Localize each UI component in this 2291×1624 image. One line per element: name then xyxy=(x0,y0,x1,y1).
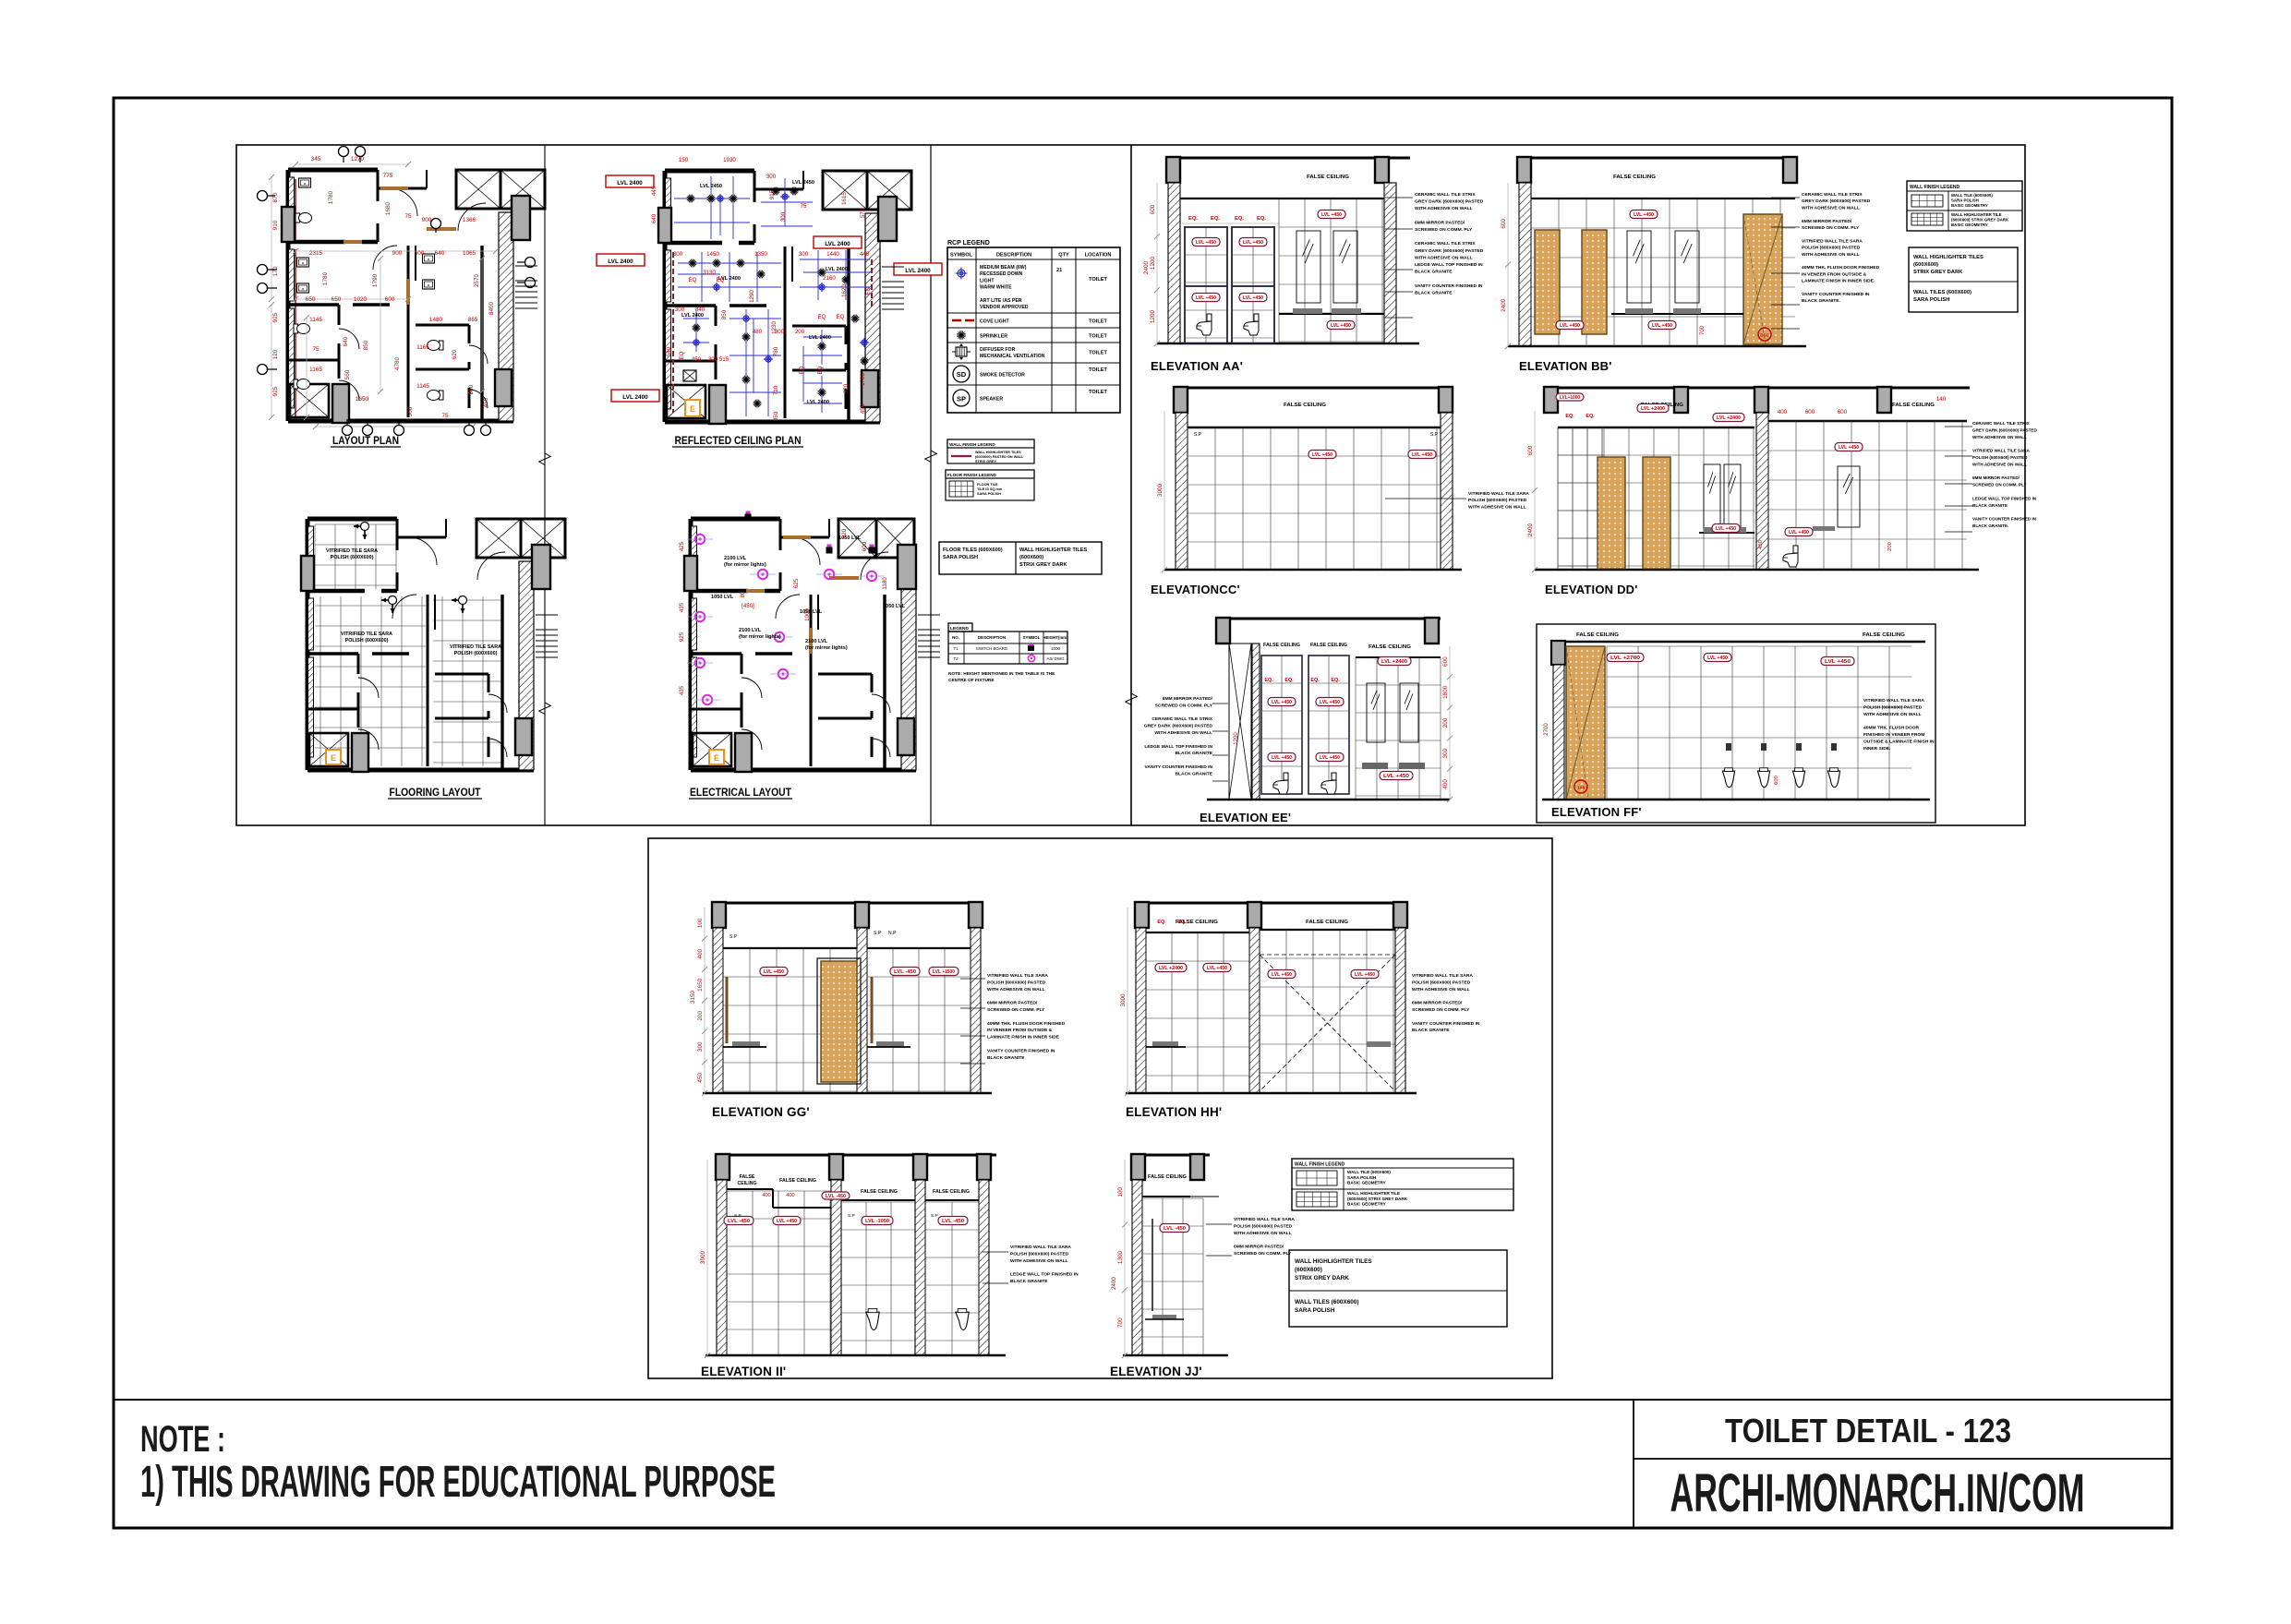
svg-text:LVL +450: LVL +450 xyxy=(1272,700,1292,705)
svg-text:FALSE CEILING: FALSE CEILING xyxy=(1307,174,1349,180)
svg-text:6MM MIRROR PASTED/: 6MM MIRROR PASTED/ xyxy=(987,1001,1038,1006)
svg-text:6MM MIRROR PASTED/: 6MM MIRROR PASTED/ xyxy=(1802,219,1852,224)
svg-text:1270: 1270 xyxy=(351,156,365,162)
svg-text:EQ: EQ xyxy=(837,314,845,320)
svg-text:2100 LVL: 2100 LVL xyxy=(724,556,747,561)
svg-text:BASIC GEOMETRY: BASIC GEOMETRY xyxy=(1951,203,1988,208)
svg-text:POLISH (600X600) PASTED: POLISH (600X600) PASTED xyxy=(1234,1223,1293,1229)
svg-text:WALL FINISH LEGEND: WALL FINISH LEGEND xyxy=(1910,185,1959,190)
svg-text:LVL 2400: LVL 2400 xyxy=(622,394,648,401)
svg-text:1180: 1180 xyxy=(882,577,888,590)
svg-text:VITRIFIED TILE SARA: VITRIFIED TILE SARA xyxy=(450,644,501,650)
svg-text:WITH ADHESIVE ON WALL: WITH ADHESIVE ON WALL xyxy=(1234,1231,1292,1236)
svg-text:800: 800 xyxy=(673,251,683,258)
svg-text:560: 560 xyxy=(407,406,414,416)
svg-text:1145: 1145 xyxy=(416,383,429,390)
svg-text:WITH ADHESIVE ON WALL: WITH ADHESIVE ON WALL xyxy=(1154,730,1212,736)
svg-text:WALL HIGHLIGHTER TILES: WALL HIGHLIGHTER TILES xyxy=(1913,255,1984,260)
svg-text:(600X600) STRIX GREY DARK: (600X600) STRIX GREY DARK xyxy=(1951,218,2009,223)
svg-text:775: 775 xyxy=(383,173,393,179)
svg-text:LVL 2400: LVL 2400 xyxy=(905,268,931,274)
svg-text:WITH ADHESIVE ON WALL: WITH ADHESIVE ON WALL xyxy=(1972,462,2027,466)
svg-text:EQ: EQ xyxy=(818,314,826,320)
svg-text:1000: 1000 xyxy=(1051,646,1060,651)
svg-text:BLACK GRANITE: BLACK GRANITE xyxy=(1415,270,1453,275)
svg-text:SARA POLISH: SARA POLISH xyxy=(1295,1307,1335,1314)
svg-text:GREY DARK (600X600) PASTED: GREY DARK (600X600) PASTED xyxy=(1415,199,1484,205)
svg-text:780: 780 xyxy=(773,346,779,356)
svg-text:2315: 2315 xyxy=(309,250,323,257)
svg-text:CERAMIC WALL TILE STRIX: CERAMIC WALL TILE STRIX xyxy=(1415,192,1476,198)
svg-text:LVL +450: LVL +450 xyxy=(1196,295,1216,301)
svg-text:LVL +2400: LVL +2400 xyxy=(1159,966,1183,971)
svg-text:120: 120 xyxy=(272,349,279,359)
svg-text:DESCRIPTION: DESCRIPTION xyxy=(978,635,1006,640)
svg-text:440: 440 xyxy=(860,251,870,258)
svg-text:21: 21 xyxy=(1056,268,1062,273)
svg-text:EQ.: EQ. xyxy=(1310,678,1320,683)
svg-text:300: 300 xyxy=(697,1041,704,1052)
svg-text:VITRIFIED WALL TILE SARA: VITRIFIED WALL TILE SARA xyxy=(1234,1217,1295,1222)
svg-text:ELEVATION EE': ELEVATION EE' xyxy=(1200,811,1291,824)
svg-text:6MM MIRROR PASTED/: 6MM MIRROR PASTED/ xyxy=(1163,696,1213,702)
svg-text:LVL +450: LVL +450 xyxy=(1716,526,1736,532)
svg-text:400: 400 xyxy=(697,948,704,958)
svg-text:1050 LVL: 1050 LVL xyxy=(800,609,823,615)
svg-text:SARA POLISH: SARA POLISH xyxy=(943,555,978,560)
svg-text:CERAMIC WALL TILE STRIX: CERAMIC WALL TILE STRIX xyxy=(1972,421,2031,426)
svg-text:SCREWED ON COMM. PLY: SCREWED ON COMM. PLY xyxy=(1415,227,1473,233)
svg-text:VITRIFIED WALL TILE SARA: VITRIFIED WALL TILE SARA xyxy=(1468,491,1529,497)
svg-text:FALSE CEILING: FALSE CEILING xyxy=(933,1189,970,1195)
svg-text:MECHANICAL VENTILATION: MECHANICAL VENTILATION xyxy=(980,354,1045,359)
svg-text:DESCRIPTION: DESCRIPTION xyxy=(996,253,1031,259)
svg-text:1X8: 1X8 xyxy=(1577,786,1585,790)
svg-text:820: 820 xyxy=(843,383,850,393)
svg-text:AS/ DWG: AS/ DWG xyxy=(1046,656,1065,661)
svg-text:515: 515 xyxy=(719,356,730,363)
svg-text:2400: 2400 xyxy=(1111,1277,1117,1290)
svg-text:LVL 2450: LVL 2450 xyxy=(700,184,722,189)
svg-text:(600X600) STRIX GREY DARK: (600X600) STRIX GREY DARK xyxy=(1347,1197,1408,1201)
svg-text:TOILET: TOILET xyxy=(1089,334,1107,340)
svg-text:SPEAKER: SPEAKER xyxy=(980,397,1003,403)
svg-text:TOILET: TOILET xyxy=(1089,367,1107,373)
svg-text:EQ.: EQ. xyxy=(1211,216,1220,222)
svg-text:573: 573 xyxy=(860,208,866,218)
svg-text:480: 480 xyxy=(753,329,763,335)
svg-text:VITRIFIED TILE SARA: VITRIFIED TILE SARA xyxy=(326,548,378,554)
svg-text:EQ.: EQ. xyxy=(1235,216,1244,222)
svg-text:75: 75 xyxy=(404,213,412,220)
svg-text:600: 600 xyxy=(1774,776,1779,785)
svg-text:FLOOR TILES (600X600): FLOOR TILES (600X600) xyxy=(943,547,1003,553)
svg-text:WALL TILES (600X600): WALL TILES (600X600) xyxy=(1295,1299,1359,1305)
svg-text:EQ.: EQ. xyxy=(1565,414,1574,419)
svg-text:6MM MIRROR PASTED/: 6MM MIRROR PASTED/ xyxy=(1234,1245,1284,1250)
svg-text:GREY DARK (600X600) PASTED: GREY DARK (600X600) PASTED xyxy=(1415,248,1484,254)
svg-text:LIGHT: LIGHT xyxy=(980,278,995,283)
svg-text:ARCHI-MONARCH.IN/COM: ARCHI-MONARCH.IN/COM xyxy=(1670,1463,2085,1523)
svg-text:NOTE: HEIGHT MENTIONED IN THE: NOTE: HEIGHT MENTIONED IN THE TABLE IS T… xyxy=(948,671,1055,677)
svg-text:ELEVATION BB': ELEVATION BB' xyxy=(1519,359,1612,373)
svg-text:LVL +450: LVL +450 xyxy=(764,969,784,975)
svg-text:SARA POLISH: SARA POLISH xyxy=(977,492,1001,496)
svg-text:BLACK GRANITE: BLACK GRANITE xyxy=(1415,290,1453,295)
svg-text:710: 710 xyxy=(773,385,779,395)
svg-text:LVL +450: LVL +450 xyxy=(1207,966,1227,971)
svg-text:LAYOUT PLAN: LAYOUT PLAN xyxy=(332,436,399,447)
svg-text:BASIC GEOMETRY: BASIC GEOMETRY xyxy=(1951,223,1988,227)
svg-text:LVL +450: LVL +450 xyxy=(1789,530,1809,535)
svg-text:600: 600 xyxy=(1805,409,1815,415)
svg-text:CERAMIC WALL TILE STRIX: CERAMIC WALL TILE STRIX xyxy=(1802,192,1863,198)
svg-text:2160: 2160 xyxy=(823,275,836,282)
svg-text:DIFFUSER FOR: DIFFUSER FOR xyxy=(980,347,1016,353)
svg-text:LVL +450: LVL +450 xyxy=(1355,972,1375,978)
svg-text:840: 840 xyxy=(468,384,475,394)
svg-text:75: 75 xyxy=(441,413,449,419)
svg-text:CERAMIC WALL TILE STRIX: CERAMIC WALL TILE STRIX xyxy=(1152,716,1212,722)
svg-text:WALL HIGHLIGHTER TILE: WALL HIGHLIGHTER TILE xyxy=(1347,1191,1400,1196)
svg-text:EQ: EQ xyxy=(679,351,685,359)
svg-text:LVL +450: LVL +450 xyxy=(1707,656,1728,661)
svg-text:2100 LVL: 2100 LVL xyxy=(805,639,828,644)
svg-text:VITRIFIED WALL TILE SARA: VITRIFIED WALL TILE SARA xyxy=(1863,698,1924,704)
svg-text:POLISH (600X600): POLISH (600X600) xyxy=(345,638,389,644)
svg-text:LVL +450: LVL +450 xyxy=(1320,700,1340,705)
svg-text:450: 450 xyxy=(692,356,702,363)
svg-text:LEGEND: LEGEND xyxy=(950,626,970,632)
svg-text:1650: 1650 xyxy=(356,396,369,403)
svg-text:S.P: S.P xyxy=(730,934,738,940)
svg-text:BLACK GRANITE: BLACK GRANITE xyxy=(1972,503,2008,508)
svg-text:600: 600 xyxy=(385,296,395,303)
svg-text:ART LITE /AS PER: ART LITE /AS PER xyxy=(980,298,1022,304)
svg-text:POLISH (600X600) PASTED: POLISH (600X600) PASTED xyxy=(1412,980,1471,985)
svg-text:WITH ADHESIVE ON WALL: WITH ADHESIVE ON WALL xyxy=(1415,206,1473,211)
svg-text:LVL +450: LVL +450 xyxy=(1383,774,1409,779)
svg-text:BASIC GEOMETRY: BASIC GEOMETRY xyxy=(1347,1202,1386,1207)
svg-text:700: 700 xyxy=(1117,1317,1124,1328)
svg-text:E: E xyxy=(714,753,719,763)
svg-text:1290: 1290 xyxy=(749,290,755,303)
svg-text:3150: 3150 xyxy=(690,991,696,1004)
svg-text:1366: 1366 xyxy=(463,217,476,223)
svg-text:RCP LEGEND: RCP LEGEND xyxy=(947,240,990,247)
svg-text:MEDIUM BEAM (6W): MEDIUM BEAM (6W) xyxy=(980,265,1027,271)
svg-text:POLISH (600X600) PASTED: POLISH (600X600) PASTED xyxy=(1863,704,1923,710)
svg-text:FLOOR FINISH LEGEND: FLOOR FINISH LEGEND xyxy=(947,473,997,477)
svg-text:910: 910 xyxy=(272,220,279,230)
svg-text:VITRIFIED WALL TILE SARA: VITRIFIED WALL TILE SARA xyxy=(1010,1245,1071,1250)
svg-text:VANITY COUNTER FINISHED IN: VANITY COUNTER FINISHED IN xyxy=(1415,283,1483,289)
svg-text:450: 450 xyxy=(697,1072,704,1082)
svg-text:LEDGE WALL TOP FINISHED IN: LEDGE WALL TOP FINISHED IN xyxy=(1144,744,1212,750)
svg-text:N.P: N.P xyxy=(888,931,897,936)
svg-text:ELEVATIONCC': ELEVATIONCC' xyxy=(1151,583,1240,596)
svg-text:(for mirror lights): (for mirror lights) xyxy=(739,634,781,640)
svg-text:STRIX GREY: STRIX GREY xyxy=(975,460,996,463)
svg-text:1615: 1615 xyxy=(841,192,848,205)
svg-text:POLISH (600X600) PASTED: POLISH (600X600) PASTED xyxy=(1010,1251,1069,1257)
svg-text:FALSE CEILING: FALSE CEILING xyxy=(1863,632,1905,638)
svg-text:POLISH (600X600): POLISH (600X600) xyxy=(454,651,498,656)
svg-text:SCREWED ON COMM. PLY: SCREWED ON COMM. PLY xyxy=(1155,703,1213,708)
svg-text:OUTSIDE & LAMINATE FINISH IN: OUTSIDE & LAMINATE FINISH IN xyxy=(1863,739,1935,744)
svg-text:EQ.: EQ. xyxy=(1177,920,1187,925)
svg-text:450: 450 xyxy=(483,397,489,407)
svg-text:FALSE CEILING: FALSE CEILING xyxy=(1284,403,1326,408)
svg-text:FALSE CEILING: FALSE CEILING xyxy=(1892,403,1935,408)
svg-text:WITH ADHESIVE ON WALL: WITH ADHESIVE ON WALL xyxy=(1863,712,1922,717)
svg-text:870: 870 xyxy=(272,192,279,202)
svg-text:600: 600 xyxy=(1527,445,1534,455)
svg-text:WITH ADHESIVE ON WALL: WITH ADHESIVE ON WALL xyxy=(1415,255,1473,260)
svg-text:S.P: S.P xyxy=(874,931,882,936)
svg-text:625: 625 xyxy=(793,578,800,588)
svg-text:LVL +2700: LVL +2700 xyxy=(1610,656,1640,661)
svg-text:POLISH (600X600) PASTED: POLISH (600X600) PASTED xyxy=(1972,455,2028,460)
svg-text:[450]: [450] xyxy=(742,603,754,609)
svg-text:EQ: EQ xyxy=(865,286,872,295)
svg-text:LAMINATE FINISH IN INNER SIDE.: LAMINATE FINISH IN INNER SIDE. xyxy=(1802,279,1875,284)
svg-text:POLISH (600X600): POLISH (600X600) xyxy=(331,555,374,560)
svg-text:WALL FINISH LEGEND: WALL FINISH LEGEND xyxy=(949,442,995,447)
svg-text:VENDOR APPROVED: VENDOR APPROVED xyxy=(980,305,1029,310)
svg-text:LVL +450: LVL +450 xyxy=(1839,445,1859,451)
svg-text:WARM WHITE: WARM WHITE xyxy=(980,285,1012,291)
svg-text:SARA POLISH: SARA POLISH xyxy=(1347,1175,1377,1180)
svg-text:(600X600) PASTED ON WALL: (600X600) PASTED ON WALL xyxy=(975,455,1024,459)
svg-text:100: 100 xyxy=(1117,1187,1124,1197)
svg-text:LOCATION: LOCATION xyxy=(1085,253,1112,259)
svg-text:(for mirror lights): (for mirror lights) xyxy=(724,562,766,568)
svg-text:75: 75 xyxy=(801,203,807,210)
svg-text:600: 600 xyxy=(862,541,868,551)
svg-text:300: 300 xyxy=(675,307,685,313)
svg-text:SARA POLISH: SARA POLISH xyxy=(1913,297,1949,303)
svg-text:LVL +1500: LVL +1500 xyxy=(933,969,955,975)
svg-text:IN VENEER FROM OUTSIDE &: IN VENEER FROM OUTSIDE & xyxy=(1802,271,1867,277)
svg-text:POLISH (600X600) PASTED: POLISH (600X600) PASTED xyxy=(987,980,1046,985)
svg-text:LVL+1000: LVL+1000 xyxy=(1560,395,1580,401)
svg-text:1000: 1000 xyxy=(804,608,811,621)
svg-text:TOILET: TOILET xyxy=(1089,319,1107,325)
svg-text:1620: 1620 xyxy=(841,284,848,297)
svg-text:450: 450 xyxy=(860,403,866,414)
svg-text:FALSE CEILING: FALSE CEILING xyxy=(861,1189,898,1195)
svg-text:1440: 1440 xyxy=(826,251,839,258)
svg-text:FALSE CEILING: FALSE CEILING xyxy=(1310,643,1347,648)
svg-text:LVL -450: LVL -450 xyxy=(826,1194,846,1199)
svg-text:SWITCH BOARD: SWITCH BOARD xyxy=(976,646,1007,651)
svg-text:TOILET: TOILET xyxy=(1089,277,1107,283)
svg-text:200: 200 xyxy=(795,329,805,335)
svg-text:540: 540 xyxy=(666,346,672,356)
svg-text:POLISH (600X600) PASTED: POLISH (600X600) PASTED xyxy=(1468,498,1527,503)
svg-text:1200: 1200 xyxy=(1150,256,1156,270)
svg-text:SYMBOL: SYMBOL xyxy=(1023,635,1041,640)
svg-text:6MM MIRROR PASTED/: 6MM MIRROR PASTED/ xyxy=(1415,220,1465,225)
svg-text:DSC: DSC xyxy=(1760,333,1769,338)
svg-text:WITH ADHESIVE ON WALL: WITH ADHESIVE ON WALL xyxy=(1972,435,2027,439)
svg-text:S.P: S.P xyxy=(734,1213,742,1219)
svg-text:STRIX GREY DARK: STRIX GREY DARK xyxy=(1019,562,1067,568)
svg-text:QTY: QTY xyxy=(1058,253,1069,259)
svg-text:WALL HIGHLIGHTER TILES: WALL HIGHLIGHTER TILES xyxy=(1295,1258,1372,1265)
svg-text:LVL +450: LVL +450 xyxy=(1243,295,1263,301)
svg-text:600: 600 xyxy=(1501,218,1507,228)
svg-text:1350: 1350 xyxy=(754,251,767,258)
svg-text:TOILET DETAIL - 123: TOILET DETAIL - 123 xyxy=(1725,1412,2011,1450)
svg-text:LVL +2400: LVL +2400 xyxy=(1717,415,1741,421)
svg-text:S.P: S.P xyxy=(931,1213,938,1219)
svg-text:RECESSED DOWN: RECESSED DOWN xyxy=(980,271,1023,277)
svg-text:1480: 1480 xyxy=(429,317,443,323)
svg-text:LVL -450: LVL -450 xyxy=(1164,1226,1186,1232)
svg-text:3000: 3000 xyxy=(1157,483,1164,497)
svg-text:SD: SD xyxy=(957,370,967,379)
svg-text:WITH ADHESIVE ON WALL: WITH ADHESIVE ON WALL xyxy=(1468,504,1526,510)
svg-text:LVL +450: LVL +450 xyxy=(1331,323,1351,329)
svg-text:VANITY COUNTER FINISHED IN: VANITY COUNTER FINISHED IN xyxy=(1412,1021,1480,1027)
svg-text:LVL 2400: LVL 2400 xyxy=(617,180,643,186)
svg-text:FALSE CEILING: FALSE CEILING xyxy=(1306,920,1348,925)
svg-text:450: 450 xyxy=(1758,540,1764,549)
svg-text:SCREWED ON COMM. PLY: SCREWED ON COMM. PLY xyxy=(1972,483,2027,487)
svg-text:300: 300 xyxy=(1442,748,1449,758)
svg-text:3000: 3000 xyxy=(1120,993,1127,1007)
svg-text:LVL +450: LVL +450 xyxy=(1321,212,1342,218)
svg-text:1930: 1930 xyxy=(723,157,736,163)
svg-text:VITRIFIED WALL TILE SARA: VITRIFIED WALL TILE SARA xyxy=(1412,973,1473,979)
svg-text:400: 400 xyxy=(1778,409,1788,415)
svg-text:1020: 1020 xyxy=(354,296,368,303)
svg-text:LVL +450: LVL +450 xyxy=(1196,240,1216,246)
svg-text:1200: 1200 xyxy=(1150,309,1156,323)
svg-text:80: 80 xyxy=(740,591,746,597)
svg-text:40MM THK. FLUSH DOOR FINISHED: 40MM THK. FLUSH DOOR FINISHED xyxy=(987,1021,1066,1027)
svg-text:S.P: S.P xyxy=(848,1213,855,1219)
svg-text:WITH ADHESIVE ON WALL: WITH ADHESIVE ON WALL xyxy=(1010,1258,1068,1264)
svg-text:400: 400 xyxy=(1442,779,1449,789)
svg-text:SYMBOL: SYMBOL xyxy=(950,253,973,259)
svg-text:WALL TILES (600X600): WALL TILES (600X600) xyxy=(1913,290,1971,295)
svg-text:TOILET: TOILET xyxy=(1089,351,1107,356)
svg-text:VANITY COUNTER FINISHED IN: VANITY COUNTER FINISHED IN xyxy=(1802,292,1870,297)
svg-text:WITH ADHESIVE ON WALL: WITH ADHESIVE ON WALL xyxy=(1802,205,1860,211)
svg-text:SPRINKLER: SPRINKLER xyxy=(980,334,1007,340)
svg-text:VANITY COUNTER FINISHED IN: VANITY COUNTER FINISHED IN xyxy=(1145,764,1213,770)
svg-text:E: E xyxy=(331,753,336,763)
svg-text:INNER SIDE.: INNER SIDE. xyxy=(1863,746,1891,752)
svg-text:865: 865 xyxy=(468,317,478,323)
svg-text:925: 925 xyxy=(272,312,279,322)
svg-text:850: 850 xyxy=(721,309,728,319)
svg-text:FALSE CEILING: FALSE CEILING xyxy=(1263,643,1300,648)
svg-text:40MM THK. FLUSH DOOR FINISHED: 40MM THK. FLUSH DOOR FINISHED xyxy=(1802,265,1880,271)
svg-text:400: 400 xyxy=(762,1193,770,1198)
svg-text:VITRIFIED TILE SARA: VITRIFIED TILE SARA xyxy=(341,632,392,637)
svg-text:435: 435 xyxy=(679,685,685,695)
svg-text:COVE LIGHT: COVE LIGHT xyxy=(980,319,1010,325)
svg-text:ELEVATION FF': ELEVATION FF' xyxy=(1551,805,1642,819)
svg-text:1780: 1780 xyxy=(322,271,329,285)
svg-text:620: 620 xyxy=(841,528,848,538)
svg-text:EQ.: EQ. xyxy=(1331,678,1340,683)
svg-text:CERAMIC WALL TILE STRIX: CERAMIC WALL TILE STRIX xyxy=(1415,241,1476,247)
svg-text:400: 400 xyxy=(786,1193,794,1198)
svg-text:LVL +450: LVL +450 xyxy=(1272,755,1292,761)
svg-text:1650: 1650 xyxy=(697,978,704,992)
svg-text:FLOORING LAYOUT: FLOORING LAYOUT xyxy=(390,788,481,799)
svg-text:(600X600): (600X600) xyxy=(1913,262,1938,268)
svg-text:4780: 4780 xyxy=(394,356,401,370)
svg-text:VITRIFIED WALL TILE SARA: VITRIFIED WALL TILE SARA xyxy=(987,973,1048,979)
svg-text:1790: 1790 xyxy=(372,273,379,287)
svg-text:NOTE :: NOTE : xyxy=(140,1419,225,1460)
svg-text:WITH ADHESIVE ON WALL: WITH ADHESIVE ON WALL xyxy=(1412,987,1470,992)
svg-text:1200: 1200 xyxy=(1234,732,1239,745)
svg-text:ELEVATION II': ELEVATION II' xyxy=(701,1365,786,1378)
svg-text:600: 600 xyxy=(1838,409,1848,415)
svg-text:E: E xyxy=(690,404,695,414)
svg-text:WALL HIGHLIGHTER TILES: WALL HIGHLIGHTER TILES xyxy=(1019,547,1088,553)
svg-text:WITH ADHESIVE ON WALL: WITH ADHESIVE ON WALL xyxy=(1802,252,1860,258)
svg-text:SCREWED ON COMM. PLY: SCREWED ON COMM. PLY xyxy=(1802,225,1860,231)
svg-text:SMOKE DETECTOR: SMOKE DETECTOR xyxy=(980,373,1025,379)
svg-text:VANITY COUNTER FINISHED IN: VANITY COUNTER FINISHED IN xyxy=(1972,517,2037,522)
svg-text:425: 425 xyxy=(679,541,685,551)
svg-text:CEILING: CEILING xyxy=(737,1181,756,1186)
svg-text:LVL +450: LVL +450 xyxy=(1272,972,1292,978)
svg-text:FALSE: FALSE xyxy=(740,1174,755,1180)
svg-text:GREY DARK (600X600) PASTED: GREY DARK (600X600) PASTED xyxy=(1972,427,2037,432)
svg-text:S.P: S.P xyxy=(1194,432,1202,438)
svg-text:200: 200 xyxy=(697,1010,704,1020)
svg-text:100: 100 xyxy=(697,918,704,928)
svg-text:S.P: S.P xyxy=(1430,432,1439,438)
svg-text:LVL 2400: LVL 2400 xyxy=(825,241,850,247)
svg-text:300: 300 xyxy=(775,329,785,335)
svg-text:1165: 1165 xyxy=(309,367,322,373)
svg-text:600: 600 xyxy=(415,250,425,257)
svg-text:170: 170 xyxy=(272,266,279,276)
svg-text:LVL +450: LVL +450 xyxy=(1825,659,1851,665)
svg-text:FALSE CEILING: FALSE CEILING xyxy=(1369,644,1411,650)
svg-text:EQ.: EQ. xyxy=(1284,678,1294,683)
svg-text:WALL HIGHLIGHTER TILE: WALL HIGHLIGHTER TILE xyxy=(1951,212,2002,217)
svg-text:300: 300 xyxy=(708,356,718,363)
svg-text:WALL HIGHLIGHTER TILES: WALL HIGHLIGHTER TILES xyxy=(975,451,1021,454)
svg-text:200: 200 xyxy=(1442,717,1449,728)
svg-text:2570: 2570 xyxy=(474,273,480,287)
svg-text:BLACK GRANITE: BLACK GRANITE xyxy=(987,1055,1025,1061)
svg-text:1780: 1780 xyxy=(860,373,866,386)
svg-text:LVL +450: LVL +450 xyxy=(1560,323,1580,329)
svg-text:LVL 2400: LVL 2400 xyxy=(807,400,829,405)
svg-text:3130: 3130 xyxy=(703,270,716,276)
svg-text:EQ: EQ xyxy=(689,277,697,283)
svg-text:LVL +450: LVL +450 xyxy=(777,1219,797,1224)
svg-text:700: 700 xyxy=(1700,325,1706,335)
svg-text:WALL TILE (600X600): WALL TILE (600X600) xyxy=(1347,1170,1391,1174)
svg-text:LVL +2400: LVL +2400 xyxy=(1641,406,1665,412)
svg-text:75: 75 xyxy=(312,346,320,353)
svg-text:40MM THK. FLUSH DOOR: 40MM THK. FLUSH DOOR xyxy=(1863,726,1920,731)
svg-text:435: 435 xyxy=(679,602,685,612)
